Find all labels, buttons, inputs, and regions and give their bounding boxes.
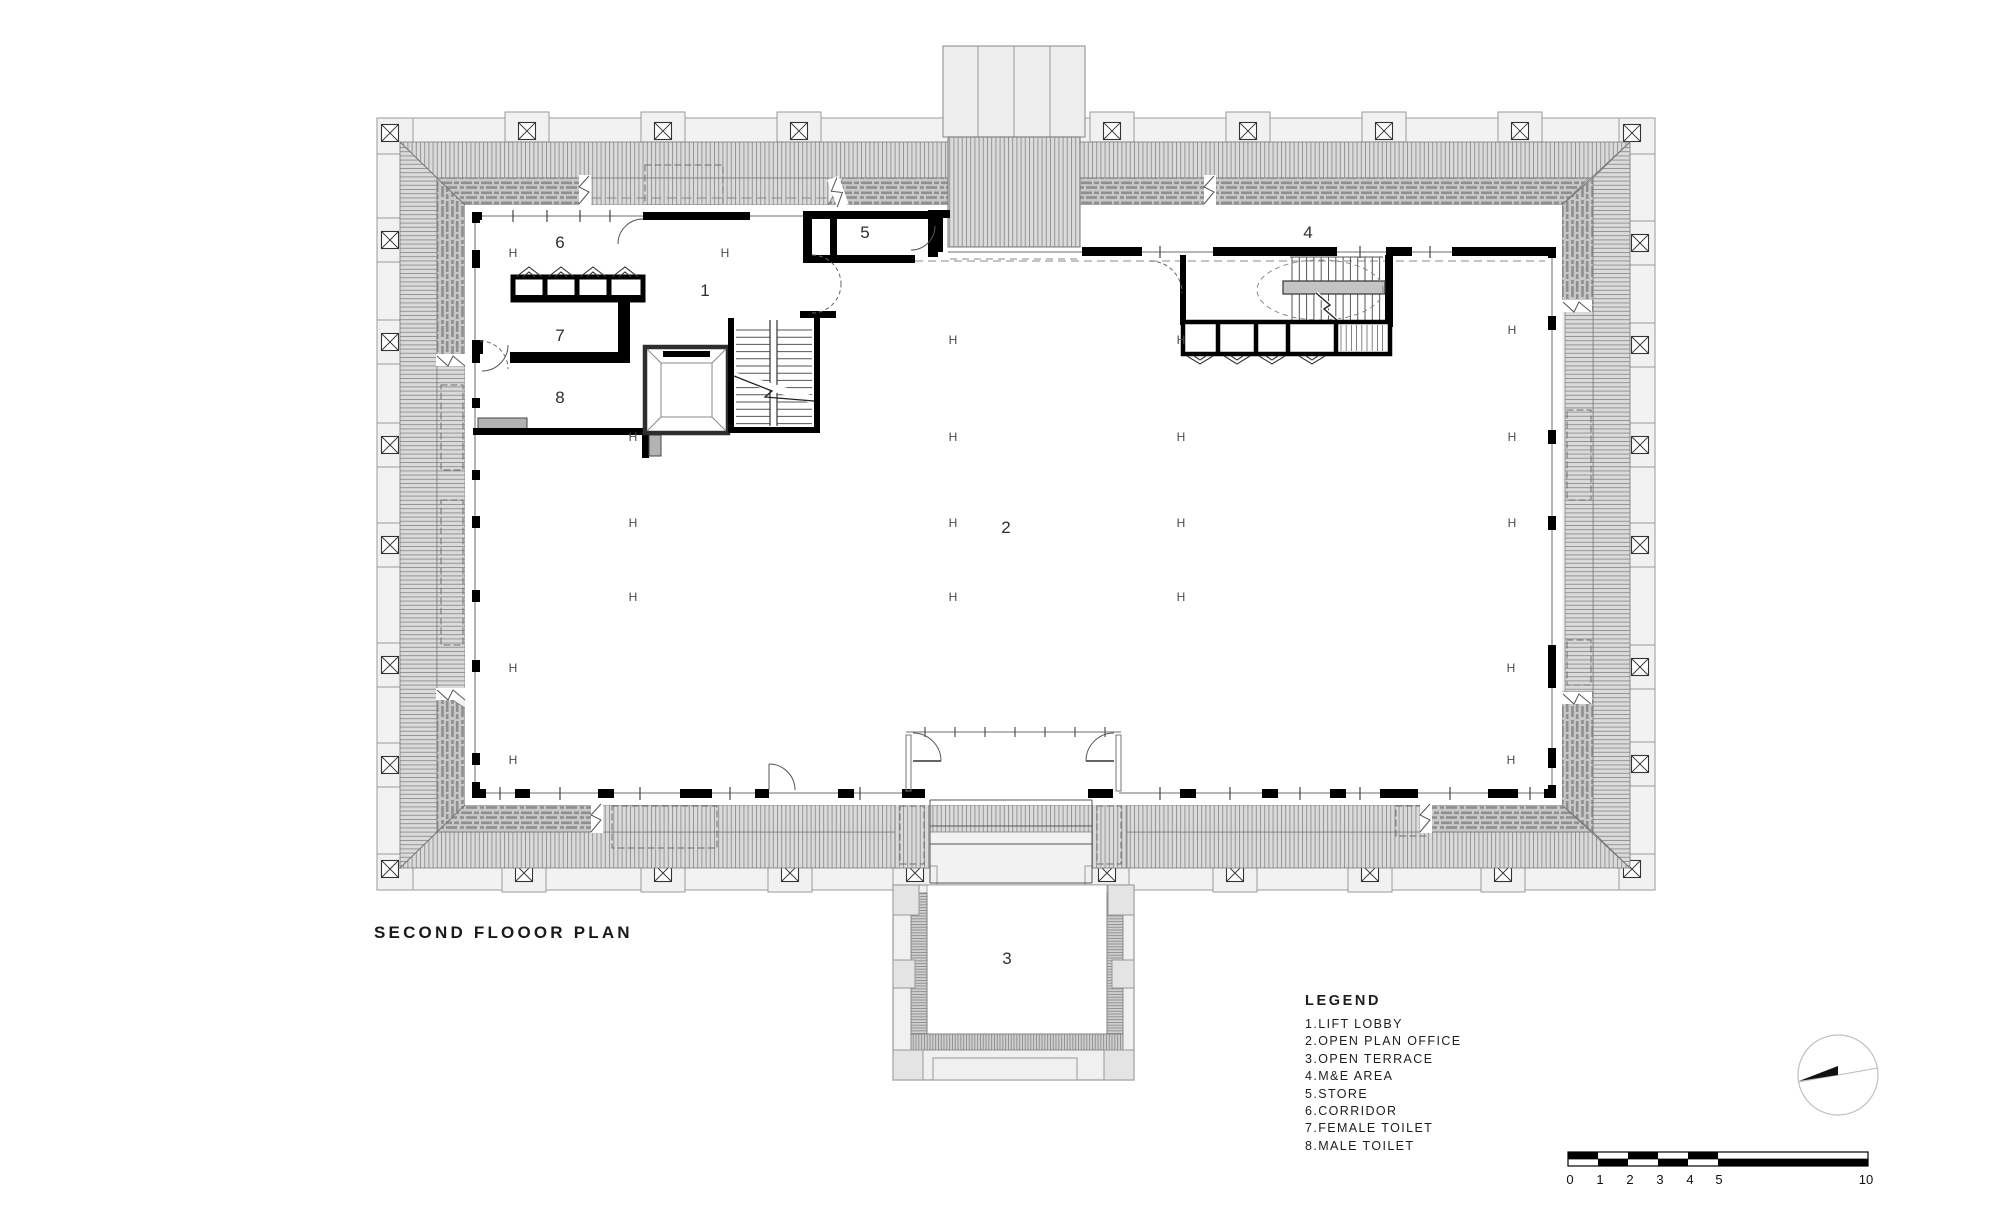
column-marker: H [629,430,638,444]
column-marker: H [949,590,958,604]
room-label-1: 1 [700,281,709,300]
column-marker: H [629,590,638,604]
legend-item: 8.MALE TOILET [1305,1138,1461,1155]
column-marker: H [949,333,958,347]
column-marker: H [509,246,518,260]
north-arrow [1798,1035,1878,1115]
room-label-2: 2 [1001,518,1010,537]
room-label-4: 4 [1303,223,1312,242]
room-label-6: 6 [555,233,564,252]
svg-text:10: 10 [1859,1172,1873,1187]
svg-text:3: 3 [1656,1172,1663,1187]
column-marker: H [1507,753,1516,767]
legend-item: 7.FEMALE TOILET [1305,1120,1461,1137]
legend: LEGEND 1.LIFT LOBBY 2.OPEN PLAN OFFICE 3… [1305,993,1461,1155]
column-marker: H [1177,590,1186,604]
column-marker: H [1177,430,1186,444]
open-terrace [893,885,1134,1080]
floor-plan-drawing: 1 2 3 4 5 6 7 8 HHHHHHHHHHHHHHHHHHHH 0 1… [0,0,2000,1218]
column-marker: H [949,430,958,444]
legend-item: 5.STORE [1305,1086,1461,1103]
svg-text:5: 5 [1715,1172,1722,1187]
room-label-7: 7 [555,326,564,345]
column-marker: H [1507,661,1516,675]
me-stair-landing [1283,281,1385,294]
lift-door-threshold [663,351,710,357]
column-marker: H [1177,516,1186,530]
column-marker: H [721,246,730,260]
column-marker: H [1508,430,1517,444]
column-marker: H [1177,333,1186,347]
legend-item: 6.CORRIDOR [1305,1103,1461,1120]
legend-heading: LEGEND [1305,993,1461,1009]
legend-item: 3.OPEN TERRACE [1305,1051,1461,1068]
column-marker: H [509,753,518,767]
column-marker: H [949,516,958,530]
scale-bar: 0 1 2 3 4 5 10 [1566,1152,1873,1187]
drawing-title: SECOND FLOOOR PLAN [374,923,633,943]
room-label-5: 5 [860,223,869,242]
lift-shaft [645,347,728,433]
room-label-3: 3 [1002,949,1011,968]
svg-text:1: 1 [1596,1172,1603,1187]
column-marker: H [1508,516,1517,530]
column-marker: H [509,661,518,675]
legend-item: 4.M&E AREA [1305,1068,1461,1085]
svg-text:2: 2 [1626,1172,1633,1187]
scale-bar-labels: 0 1 2 3 4 5 10 [1566,1172,1873,1187]
legend-item: 2.OPEN PLAN OFFICE [1305,1033,1461,1050]
svg-text:4: 4 [1686,1172,1693,1187]
column-marker: H [1508,323,1517,337]
legend-item: 1.LIFT LOBBY [1305,1016,1461,1033]
room-label-8: 8 [555,388,564,407]
svg-text:0: 0 [1566,1172,1573,1187]
column-marker: H [629,516,638,530]
floor-plan-sheet: 1 2 3 4 5 6 7 8 HHHHHHHHHHHHHHHHHHHH 0 1… [0,0,2000,1218]
terrace-railing-bottom [911,1034,1123,1050]
